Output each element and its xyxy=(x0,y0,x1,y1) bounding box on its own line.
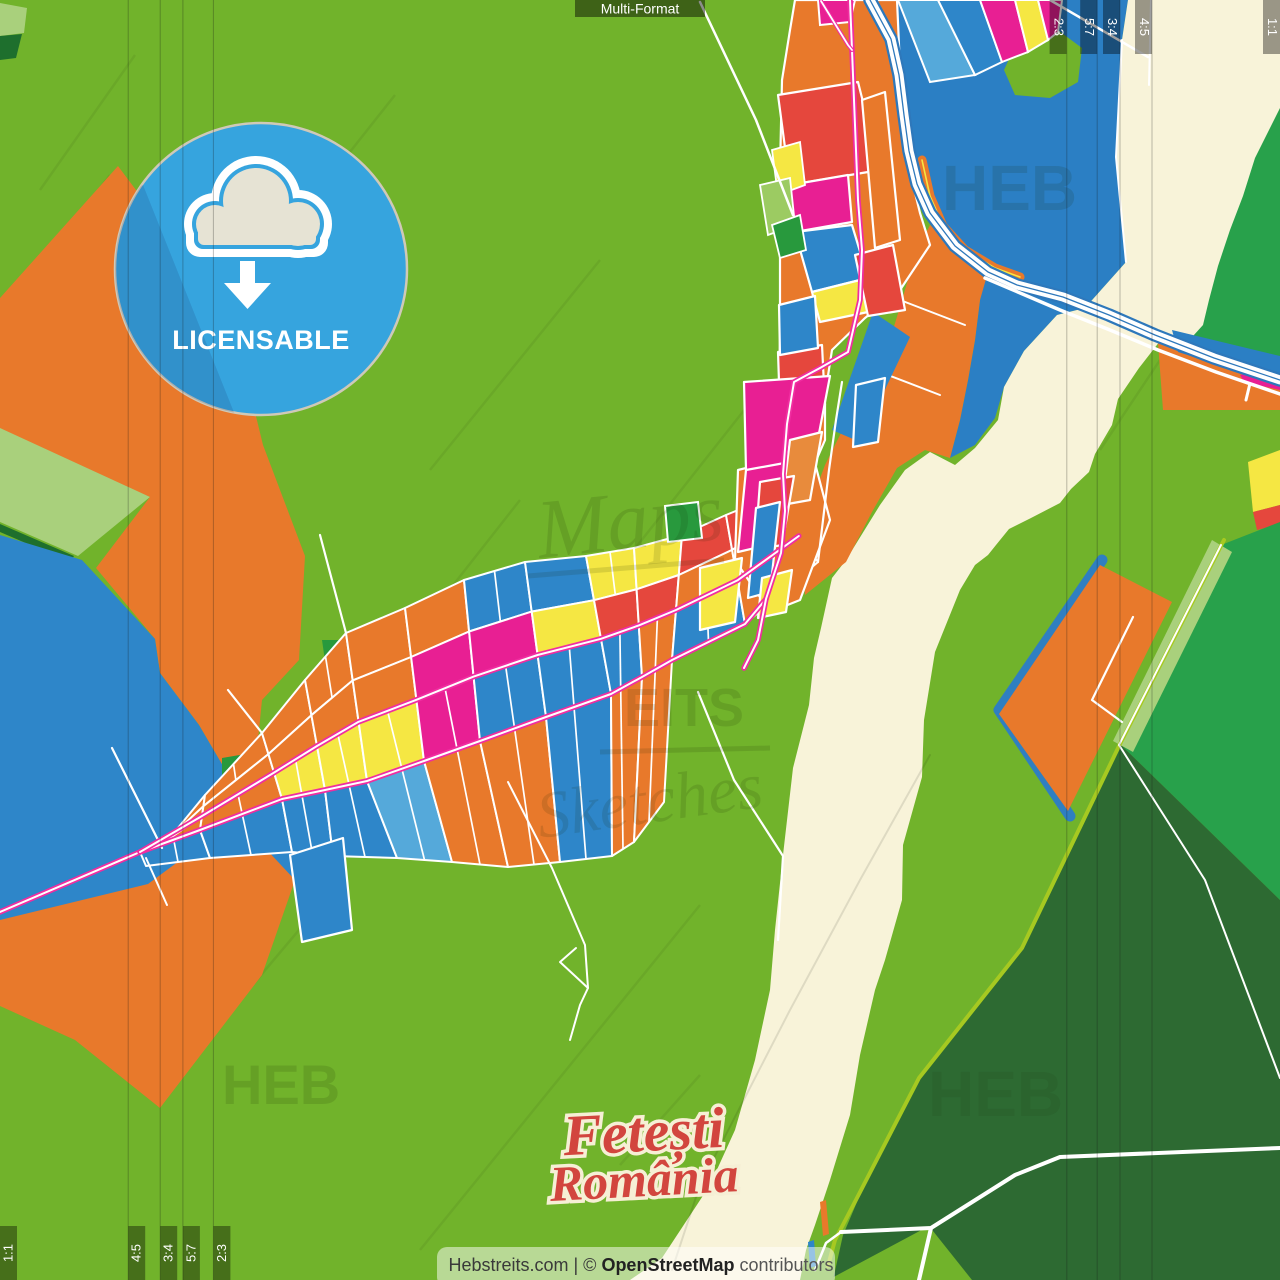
svg-text:4:5: 4:5 xyxy=(1137,18,1152,36)
svg-text:HEB: HEB xyxy=(942,152,1077,224)
svg-text:HEB: HEB xyxy=(928,1058,1063,1130)
svg-text:4:5: 4:5 xyxy=(129,1244,144,1262)
svg-text:HEB: HEB xyxy=(222,1053,340,1116)
svg-text:EITS: EITS xyxy=(624,678,744,738)
svg-text:Hebstreits.com | © OpenStreetM: Hebstreits.com | © OpenStreetMap contrib… xyxy=(448,1255,833,1275)
svg-text:1:1: 1:1 xyxy=(1265,18,1280,36)
svg-text:Multi-Format: Multi-Format xyxy=(601,1,680,17)
svg-text:1:1: 1:1 xyxy=(1,1244,16,1262)
svg-text:5:7: 5:7 xyxy=(1082,18,1097,36)
svg-text:LICENSABLE: LICENSABLE xyxy=(172,325,350,355)
svg-text:3:4: 3:4 xyxy=(161,1244,176,1262)
svg-text:România: România xyxy=(547,1146,740,1212)
svg-text:5:7: 5:7 xyxy=(183,1244,198,1262)
svg-text:3:4: 3:4 xyxy=(1105,18,1120,36)
svg-text:2:3: 2:3 xyxy=(1052,18,1067,36)
svg-text:2:3: 2:3 xyxy=(214,1244,229,1262)
